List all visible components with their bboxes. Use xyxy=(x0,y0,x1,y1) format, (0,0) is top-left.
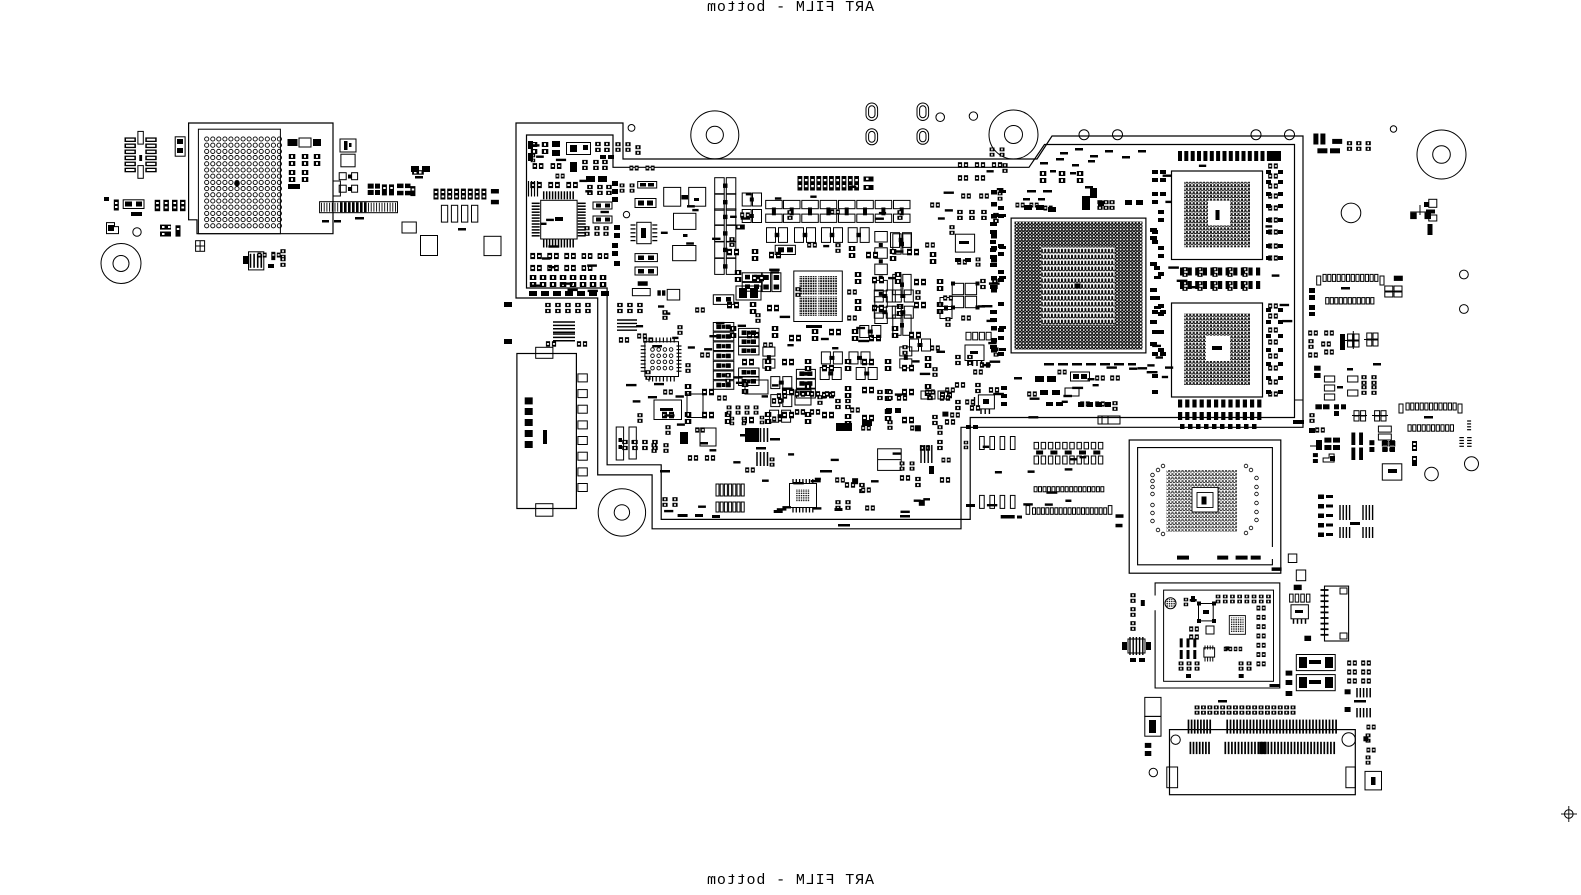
svg-text:ART FILM - bottom: ART FILM - bottom xyxy=(707,0,874,16)
svg-text:ART FILM - bottom: ART FILM - bottom xyxy=(707,872,874,889)
